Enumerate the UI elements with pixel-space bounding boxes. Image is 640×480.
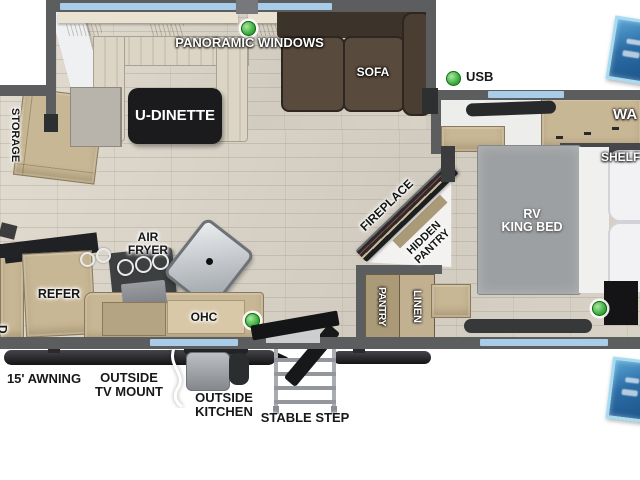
linen-label: LINEN — [410, 290, 422, 323]
awning-bar-2 — [333, 351, 431, 364]
usb-port-dot — [446, 71, 461, 86]
pantry-label-wrap: PANTRY — [366, 275, 397, 337]
stove-burner — [117, 259, 134, 276]
sofa-label: SOFA — [357, 66, 390, 79]
outside-kitchen-label-wrap: OUTSIDE KITCHEN — [187, 390, 261, 420]
refer-label: REFER — [38, 288, 80, 301]
window-shade-fan — [66, 24, 102, 36]
sink-faucet-ring — [96, 248, 111, 263]
award-badge-bottom — [605, 356, 640, 425]
counter-left-top — [0, 244, 22, 258]
sink-faucet-ring — [80, 252, 95, 267]
step-rung — [274, 400, 336, 404]
pantry-wall — [356, 265, 365, 340]
stable-step-label: STABLE STEP — [261, 411, 350, 425]
bed-bench — [464, 319, 592, 333]
window-valance — [58, 12, 238, 23]
shelf-label-wrap: SHELF — [601, 148, 640, 166]
step-rail — [274, 346, 278, 408]
step-rail — [332, 346, 336, 408]
usb-label: USB — [466, 69, 493, 84]
bedroom-divider-stub — [441, 146, 455, 182]
outside-kitchen-canister — [229, 353, 249, 385]
storage-label-wrap: STORAGE — [3, 97, 25, 173]
bedroom-led-dot — [592, 301, 607, 316]
outside-kitchen-label: OUTSIDE KITCHEN — [195, 391, 253, 419]
panoramic-window-strip — [252, 3, 332, 10]
wardrobe-partial-label: WA — [613, 106, 637, 123]
panoramic-windows-label-wrap: PANORAMIC WINDOWS — [157, 34, 342, 51]
wall-end-cap — [422, 88, 438, 114]
panoramic-window-strip — [60, 3, 236, 10]
nightstand — [431, 284, 471, 318]
cabinet-handle — [584, 132, 591, 135]
stove-burner — [135, 256, 152, 273]
dinette-table: U-DINETTE — [128, 88, 222, 144]
cabinet-handle — [556, 136, 563, 139]
ohc-label-wrap: OHC — [186, 309, 222, 325]
usb-label-wrap: USB — [466, 68, 493, 86]
refer-label-wrap: REFER — [28, 287, 90, 303]
step-rung — [274, 386, 336, 390]
linen-label-wrap: LINEN — [400, 275, 432, 337]
floorplan-diagram: U-DINETTE SOFA PANORAMIC WINDOWS STORAGE… — [0, 0, 640, 480]
bedroom-tv — [604, 281, 638, 325]
ohc-label: OHC — [191, 311, 218, 324]
bed-sheet — [579, 147, 609, 293]
air-fryer-label: AIR FRYER — [128, 231, 168, 256]
sofa-label-wrap: SOFA — [346, 64, 400, 80]
wardrobe-label-wrap: WA — [613, 106, 637, 124]
outside-tv-mount-label-wrap: OUTSIDE TV MOUNT — [92, 370, 166, 400]
edge-partial-label: D — [0, 325, 8, 334]
front-wall-stub — [0, 85, 50, 96]
wall-end-cap — [44, 114, 58, 132]
awning-label-wrap: 15' AWNING — [6, 371, 82, 387]
bedroom-window — [488, 91, 564, 98]
edge-partial-label-wrap: D — [0, 316, 12, 342]
panoramic-windows-label: PANORAMIC WINDOWS — [175, 36, 324, 50]
counter-inset — [102, 302, 166, 336]
sink-drain — [206, 258, 213, 265]
shelf-label: SHELF — [601, 150, 640, 164]
cabinet-handle — [612, 127, 619, 130]
awning-label: 15' AWNING — [7, 372, 81, 386]
pantry-label: PANTRY — [376, 287, 387, 326]
air-fryer-label-wrap: AIR FRYER — [120, 230, 176, 258]
bottom-window — [480, 339, 608, 346]
slideout-left-wall — [46, 0, 56, 132]
u-dinette-label: U-DINETTE — [135, 108, 215, 124]
bed-label-wrap: RV KING BED — [482, 203, 582, 239]
stable-step-label-wrap: STABLE STEP — [260, 410, 350, 426]
outside-tv-mount-label: OUTSIDE TV MOUNT — [95, 371, 163, 399]
bottom-window — [150, 339, 238, 346]
award-badge-top — [605, 15, 640, 88]
wall-bracket — [236, 0, 258, 14]
overhead-cabinet-left — [70, 87, 122, 147]
storage-label: STORAGE — [8, 108, 20, 162]
rv-king-bed-label: RV KING BED — [501, 208, 562, 234]
